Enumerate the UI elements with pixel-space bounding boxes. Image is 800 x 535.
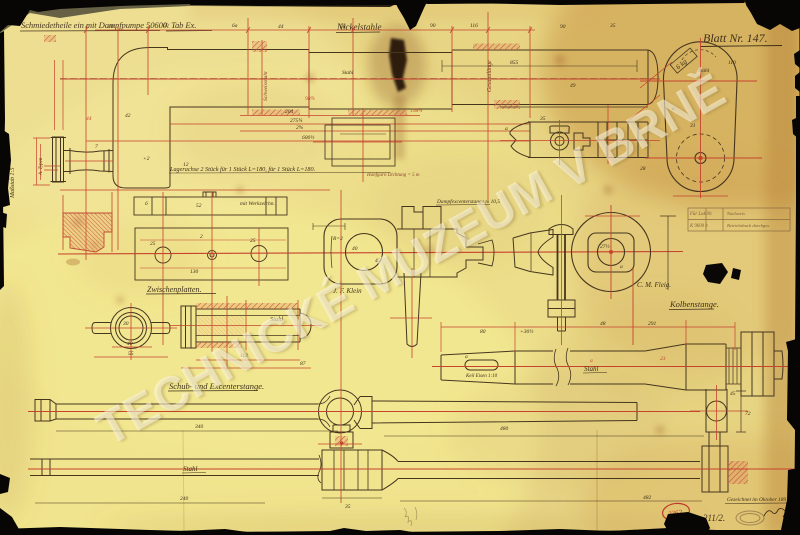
svg-text:Stahl: Stahl [584,365,598,373]
svg-text:6: 6 [145,201,148,207]
svg-text:204: 204 [285,108,294,115]
svg-text:340: 340 [194,423,204,430]
svg-text:80: 80 [480,329,486,335]
svg-text:Blatt Nr. 147.: Blatt Nr. 147. [703,31,768,45]
svg-text:275¾: 275¾ [290,118,302,124]
svg-text:Gezeichnet im Oktober 1891.: Gezeichnet im Oktober 1891. [727,497,790,503]
svg-text:a: a [620,264,623,270]
svg-text:30: 30 [122,321,129,327]
svg-text:Zwischenplatten.: Zwischenplatten. [147,285,201,294]
svg-text:198¾: 198¾ [410,108,422,114]
svg-text:90: 90 [430,23,436,29]
svg-text:35: 35 [344,504,351,510]
svg-text:291: 291 [648,321,657,327]
svg-text:240: 240 [180,495,189,502]
svg-text:40: 40 [108,23,114,30]
svg-text:R=2: R=2 [332,236,343,242]
svg-text:+2: +2 [143,156,150,162]
svg-text:A. Typen: A. Typen [39,157,44,176]
svg-text:44: 44 [278,23,284,30]
svg-text:482: 482 [643,494,652,501]
svg-text:C. M. Fleig.: C. M. Fleig. [637,281,671,289]
svg-text:87: 87 [300,361,306,367]
svg-text:45: 45 [730,390,736,397]
svg-text:+30½: +30½ [520,328,533,335]
svg-text:600½: 600½ [302,134,314,141]
svg-text:2%: 2% [296,125,304,131]
svg-text:98¾: 98¾ [305,96,315,102]
svg-text:25: 25 [250,238,256,244]
svg-text:Stahl: Stahl [183,465,197,473]
svg-text:Lagerachse 2 Stück für 1 Stück: Lagerachse 2 Stück für 1 Stück L=180, fü… [169,166,315,173]
svg-text:7: 7 [95,144,98,150]
svg-text:35: 35 [609,23,616,29]
svg-text:55: 55 [128,351,134,357]
svg-text:Gesamtlänge: Gesamtlänge [487,60,493,92]
svg-text:49: 49 [570,82,576,89]
svg-text:44: 44 [86,115,92,122]
svg-text:110: 110 [728,60,736,66]
svg-text:2: 2 [200,234,203,240]
svg-text:Hanfgarn Dichtung = 5 m: Hanfgarn Dichtung = 5 m [366,173,420,178]
svg-text:Kolbenstange.: Kolbenstange. [669,299,719,309]
svg-text:40: 40 [127,340,133,347]
svg-text:23: 23 [660,356,666,362]
svg-text:480: 480 [500,425,509,432]
svg-text:35: 35 [539,116,546,122]
svg-text:a: a [505,126,508,132]
svg-text:Schweissnaht: Schweissnaht [263,71,269,101]
svg-text:mit Werkzeichn.: mit Werkzeichn. [240,201,275,207]
svg-text:K 9600 b: K 9600 b [689,224,708,229]
svg-text:116: 116 [470,23,478,29]
svg-text:Nachweis: Nachweis [726,211,745,216]
svg-text:a: a [590,358,593,364]
svg-text:72: 72 [745,411,751,417]
svg-text:28: 28 [640,166,646,172]
svg-text:52: 52 [196,203,202,209]
svg-text:6a: 6a [232,23,238,29]
svg-text:40: 40 [352,245,358,252]
svg-text:855: 855 [510,60,519,66]
svg-text:Keil Eisen 1:10: Keil Eisen 1:10 [465,374,498,379]
svg-text:42: 42 [125,112,131,119]
svg-text:130: 130 [190,269,199,275]
svg-text:Für Lok.Nr.: Für Lok.Nr. [689,212,713,217]
svg-text:48: 48 [600,320,606,327]
svg-text:Maßstab 1:5: Maßstab 1:5 [9,168,16,200]
svg-text:58: 58 [340,24,346,30]
svg-text:27½: 27½ [600,243,610,250]
svg-text:25: 25 [150,241,156,247]
svg-text:Stahl: Stahl [342,70,354,76]
svg-text:Betriebsbuch durchges.: Betriebsbuch durchges. [727,223,770,228]
svg-text:90: 90 [560,24,566,30]
svg-text:a: a [465,354,468,360]
svg-text:60: 60 [163,23,169,29]
